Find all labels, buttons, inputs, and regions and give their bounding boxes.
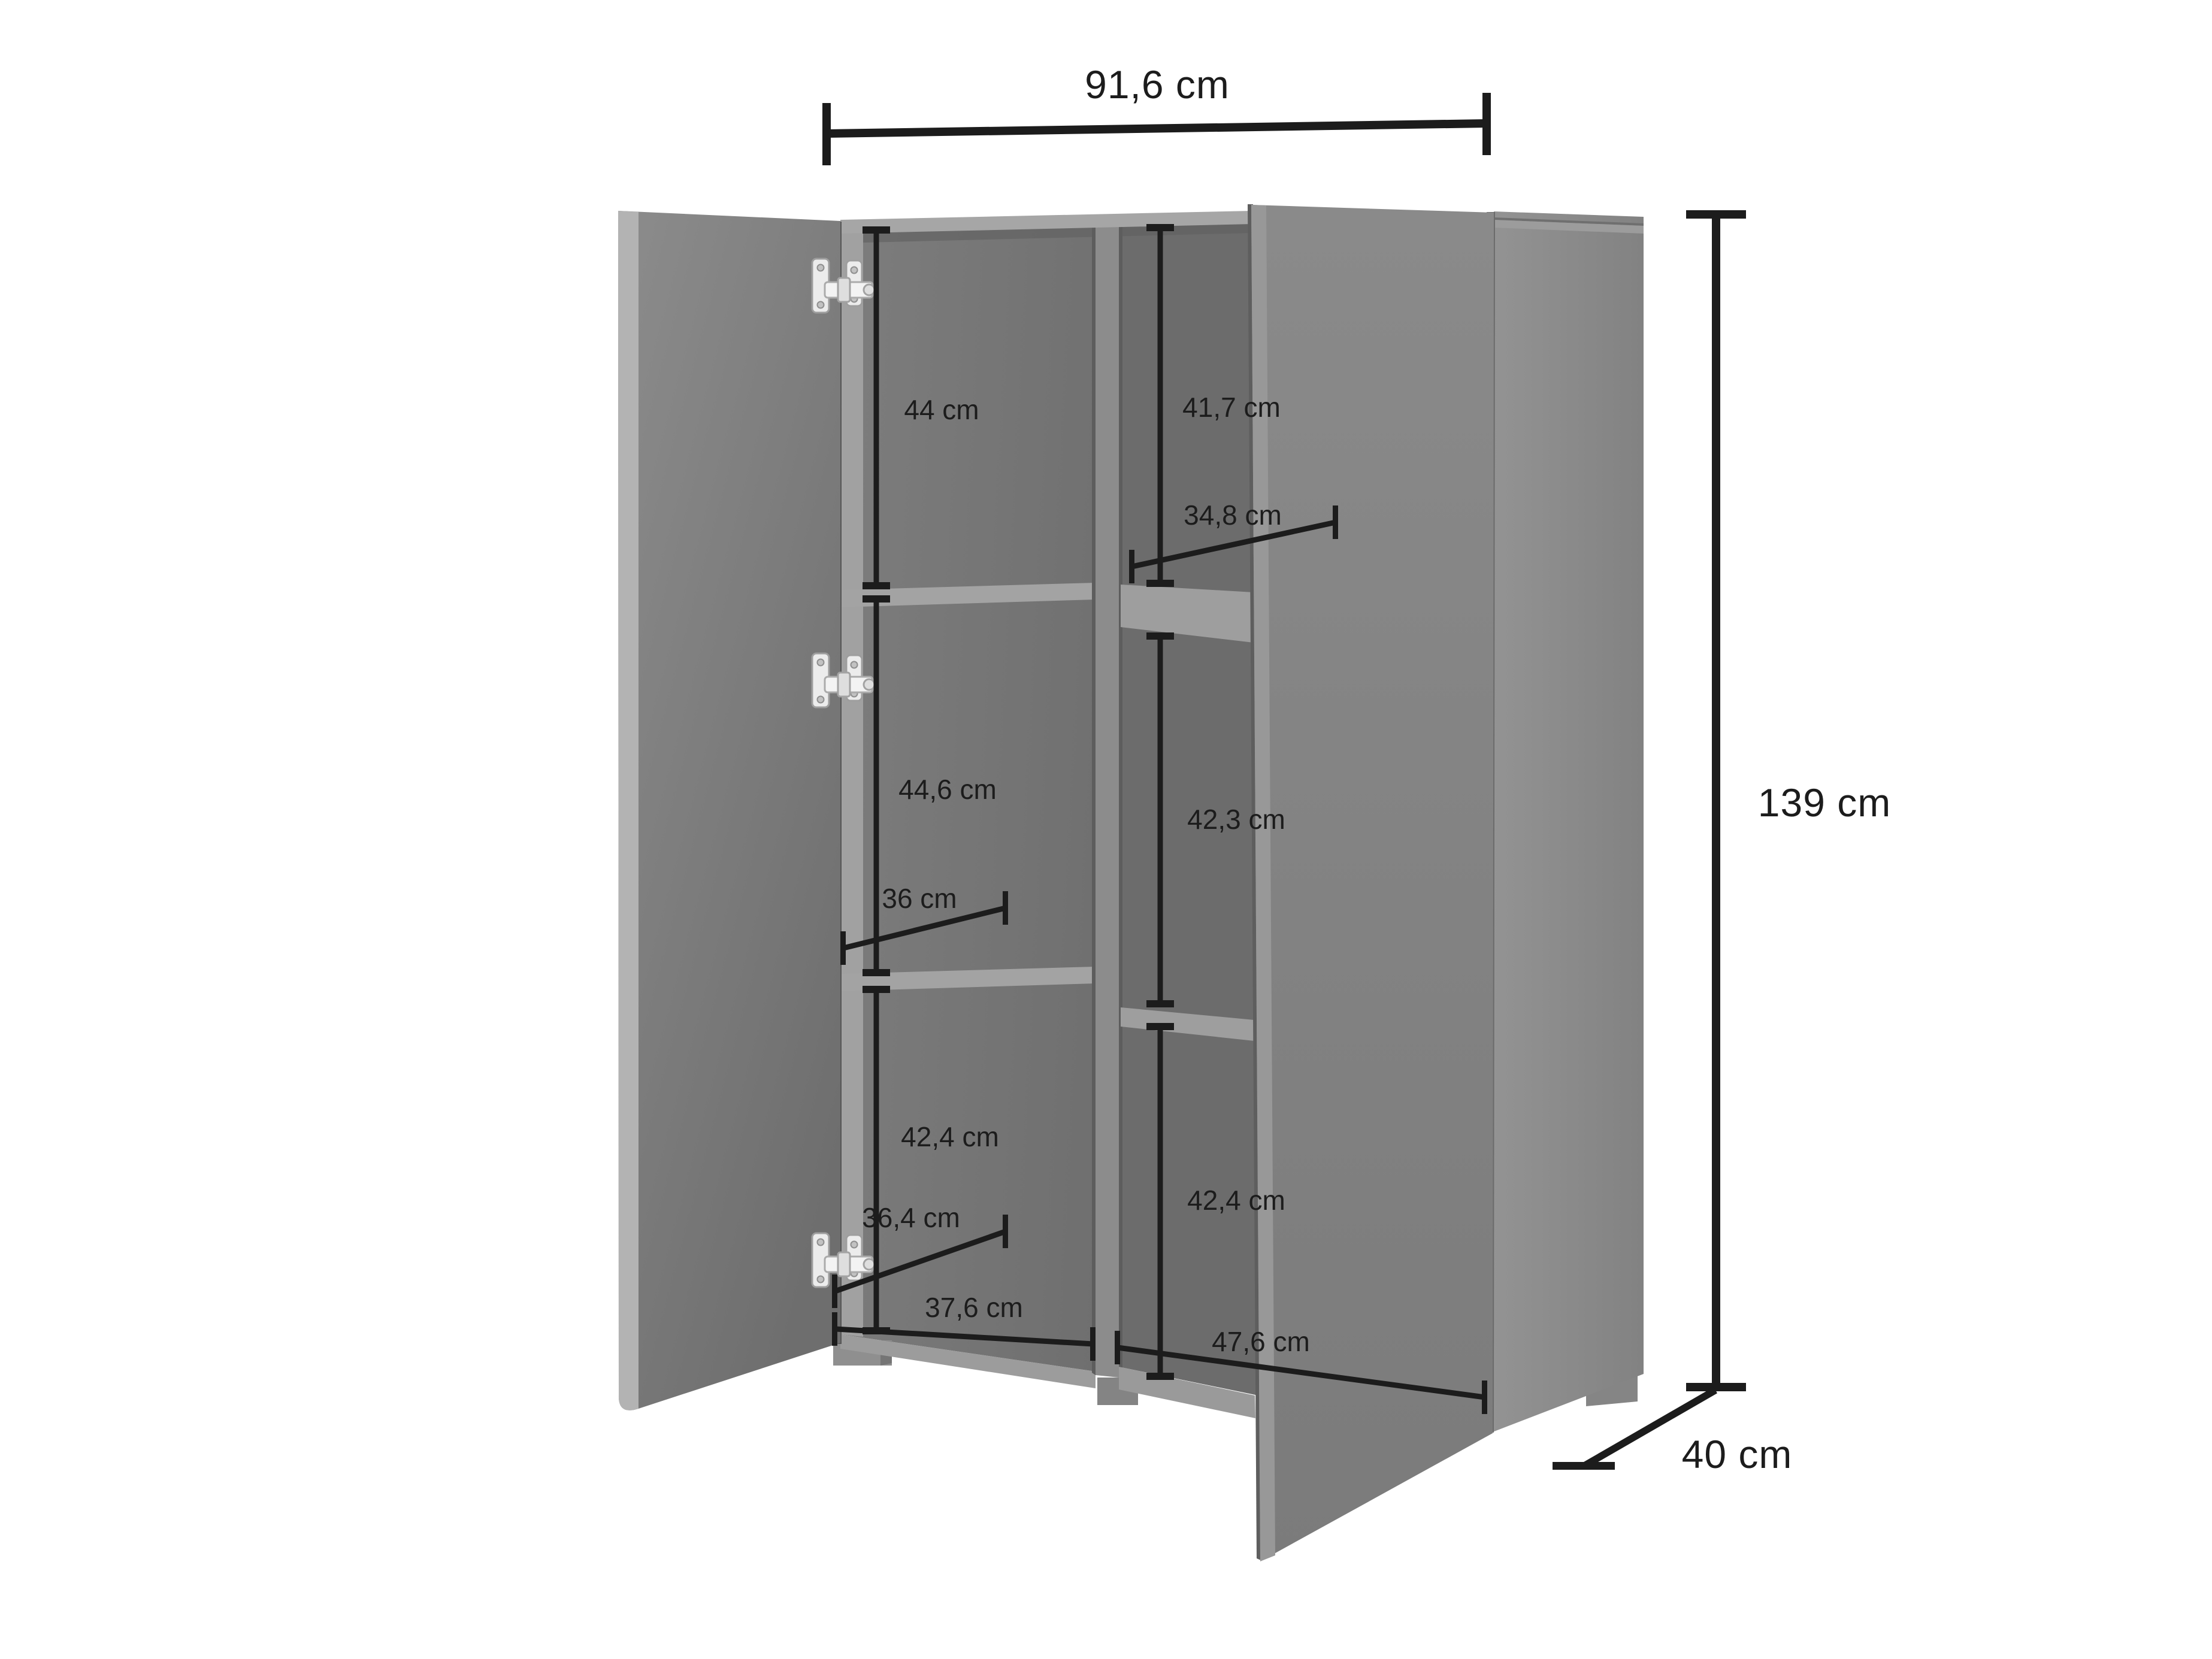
dim-tick xyxy=(1146,1373,1174,1380)
dim-tick xyxy=(1333,505,1338,539)
left-door-edge xyxy=(618,211,639,1410)
furniture-dimension-diagram: 91,6 cm 139 cm 40 cm 44 cm 44,6 cm xyxy=(0,0,2212,1659)
right-side-panel xyxy=(1493,211,1644,1432)
center-divider xyxy=(1096,226,1119,1378)
outer-height-label: 139 cm xyxy=(1758,780,1891,825)
interior-left-side-face xyxy=(840,231,863,1337)
dim-tick xyxy=(863,969,890,976)
left-bottom-height-label: 42,4 cm xyxy=(901,1121,999,1152)
right-door xyxy=(1251,205,1494,1561)
right-top-height-label: 41,7 cm xyxy=(1182,392,1281,423)
dim-tick xyxy=(1003,891,1008,925)
dim-tick xyxy=(832,1274,837,1308)
dim-tick xyxy=(1146,1023,1174,1030)
outer-depth-label: 40 cm xyxy=(1682,1432,1793,1476)
dim-tick xyxy=(1129,550,1134,583)
left-middle-depth-label: 36 cm xyxy=(882,883,957,914)
left-inner-width-label: 37,6 cm xyxy=(925,1292,1023,1323)
dim-tick xyxy=(863,595,890,603)
dim-tick xyxy=(840,931,846,965)
left-door xyxy=(618,211,840,1410)
dim-tick xyxy=(1686,1383,1746,1391)
dim-outer-height: 139 cm xyxy=(1686,210,1891,1391)
outer-width-label: 91,6 cm xyxy=(1085,62,1230,107)
dim-tick xyxy=(863,986,890,993)
dim-tick xyxy=(1146,580,1174,587)
right-top-depth-label: 34,8 cm xyxy=(1184,499,1282,531)
dim-tick xyxy=(832,1312,837,1346)
dim-tick xyxy=(1553,1462,1615,1470)
dim-tick xyxy=(1146,1000,1174,1007)
dim-tick xyxy=(863,226,890,234)
dim-outer-width: 91,6 cm xyxy=(822,62,1491,165)
left-bottom-depth-label: 36,4 cm xyxy=(862,1202,960,1233)
dim-tick xyxy=(1090,1327,1096,1361)
left-middle-height-label: 44,6 cm xyxy=(898,774,997,805)
right-bottom-height-label: 42,4 cm xyxy=(1187,1185,1285,1216)
dim-line-outer-width xyxy=(827,123,1487,134)
divider-seam-right xyxy=(1119,226,1122,1368)
right-middle-height-label: 42,3 cm xyxy=(1187,804,1285,835)
dim-tick xyxy=(863,582,890,589)
divider-seam-left xyxy=(1092,228,1096,1375)
dim-tick xyxy=(1146,224,1174,231)
left-top-height-label: 44 cm xyxy=(904,394,979,425)
dim-tick xyxy=(1146,632,1174,640)
dim-tick xyxy=(822,103,831,165)
dim-tick xyxy=(1115,1331,1120,1364)
dim-tick xyxy=(1003,1215,1008,1248)
cabinet-dimension-drawing: 91,6 cm 139 cm 40 cm 44 cm 44,6 cm xyxy=(0,0,2212,1659)
right-inner-width-label: 47,6 cm xyxy=(1212,1326,1310,1357)
dim-tick xyxy=(1482,1381,1487,1414)
dim-tick xyxy=(1686,210,1746,219)
cabinet xyxy=(618,204,1644,1561)
dim-tick xyxy=(1482,93,1491,155)
